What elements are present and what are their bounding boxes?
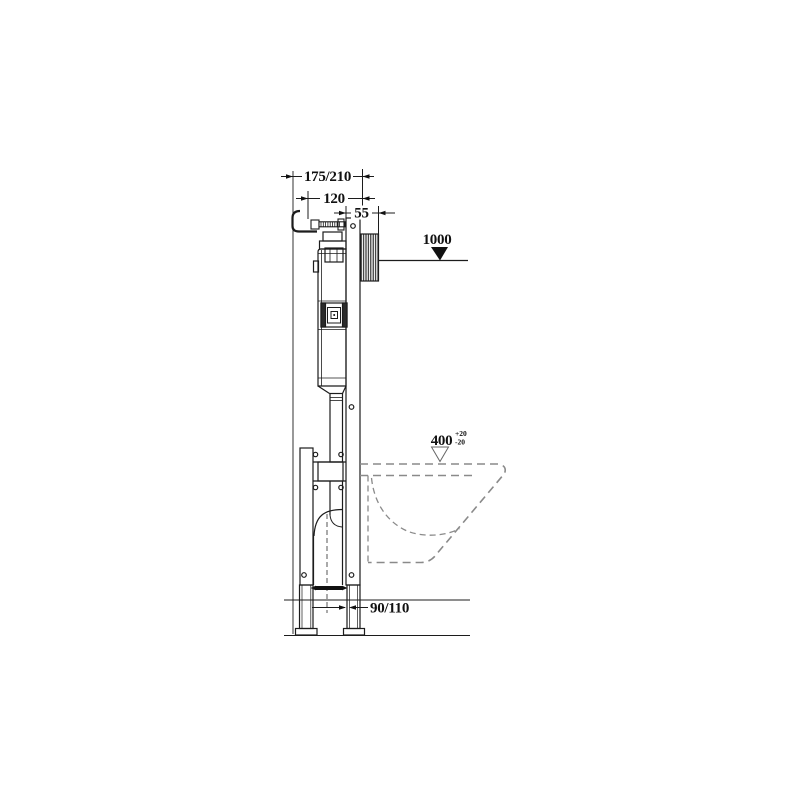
pan-bowl-curve <box>372 478 460 535</box>
level-marker-1000: 1000 <box>379 232 469 261</box>
water-supply-hook <box>293 211 318 232</box>
dim-frame-depth: 175/210 <box>281 169 374 186</box>
dim-label-frame-depth: 175/210 <box>304 169 351 185</box>
frame-hole-mid <box>349 405 354 410</box>
concealed-cistern <box>314 232 348 394</box>
frame-upright <box>346 218 360 585</box>
level-triangle-open <box>432 447 449 462</box>
dim-label-supply-offset: 120 <box>323 191 345 207</box>
wall-plate-hatched <box>361 234 379 281</box>
level-triangle-filled <box>431 247 448 261</box>
dim-label-button-height: 1000 <box>423 232 452 248</box>
threaded-rod <box>311 219 345 230</box>
inlet-cap <box>323 232 342 241</box>
dim-label-pan-height-tol-lower: -20 <box>455 438 465 447</box>
mounting-frame <box>300 218 379 585</box>
left-foot <box>296 629 318 636</box>
technical-drawing-svg: 175/210 120 55 1000 400 <box>0 0 800 800</box>
pan-connector-seal <box>311 586 348 591</box>
frame-hole-top <box>351 224 356 229</box>
fill-valve <box>325 248 343 262</box>
right-foot <box>344 629 365 636</box>
rear-support-plate <box>300 448 313 585</box>
frame-hole-bottom <box>349 573 354 578</box>
toilet-pan-outline <box>360 464 505 563</box>
plate-hole-bottom <box>302 573 307 578</box>
dim-label-outlet-offset: 90/110 <box>370 601 409 617</box>
diagram-canvas: 175/210 120 55 1000 400 <box>0 0 800 800</box>
dim-label-plate-depth: 55 <box>354 206 368 222</box>
pan-height-marker-400: 400 +20 -20 <box>431 429 467 462</box>
